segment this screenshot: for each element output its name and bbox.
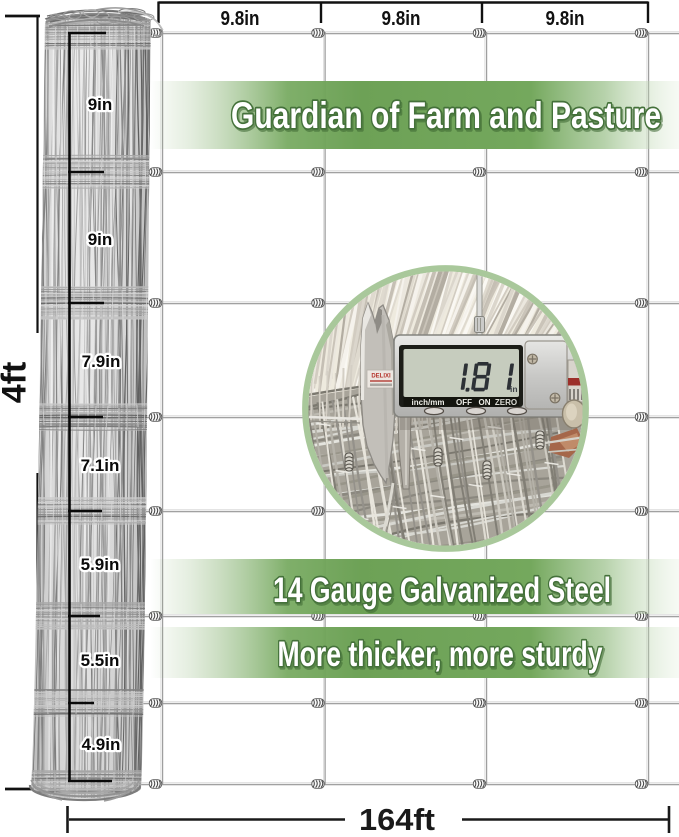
svg-text:OFF: OFF — [456, 398, 472, 407]
svg-text:14 Gauge Galvanized Steel: 14 Gauge Galvanized Steel — [273, 571, 611, 610]
svg-text:9.8in: 9.8in — [221, 8, 260, 30]
svg-text:inch/mm: inch/mm — [412, 398, 445, 407]
svg-text:9.8in: 9.8in — [382, 8, 421, 30]
svg-text:164ft: 164ft — [359, 802, 435, 837]
svg-text:ON: ON — [479, 398, 491, 407]
svg-text:4.9in: 4.9in — [82, 735, 121, 754]
svg-text:ZERO: ZERO — [495, 398, 517, 407]
svg-text:7.9in: 7.9in — [82, 352, 121, 371]
svg-text:7.1in: 7.1in — [81, 456, 120, 475]
svg-text:9.8in: 9.8in — [546, 8, 585, 30]
svg-text:in: in — [510, 384, 518, 394]
svg-text:9in: 9in — [88, 95, 113, 114]
svg-text:DELIXI: DELIXI — [371, 374, 391, 380]
svg-text:More thicker, more sturdy: More thicker, more sturdy — [278, 635, 603, 674]
svg-text:4ft: 4ft — [0, 362, 34, 404]
svg-text:5.9in: 5.9in — [81, 555, 120, 574]
svg-text:5.5in: 5.5in — [81, 651, 120, 670]
svg-text:Guardian of Farm and Pasture: Guardian of Farm and Pasture — [231, 95, 661, 136]
svg-text:9in: 9in — [88, 230, 113, 249]
